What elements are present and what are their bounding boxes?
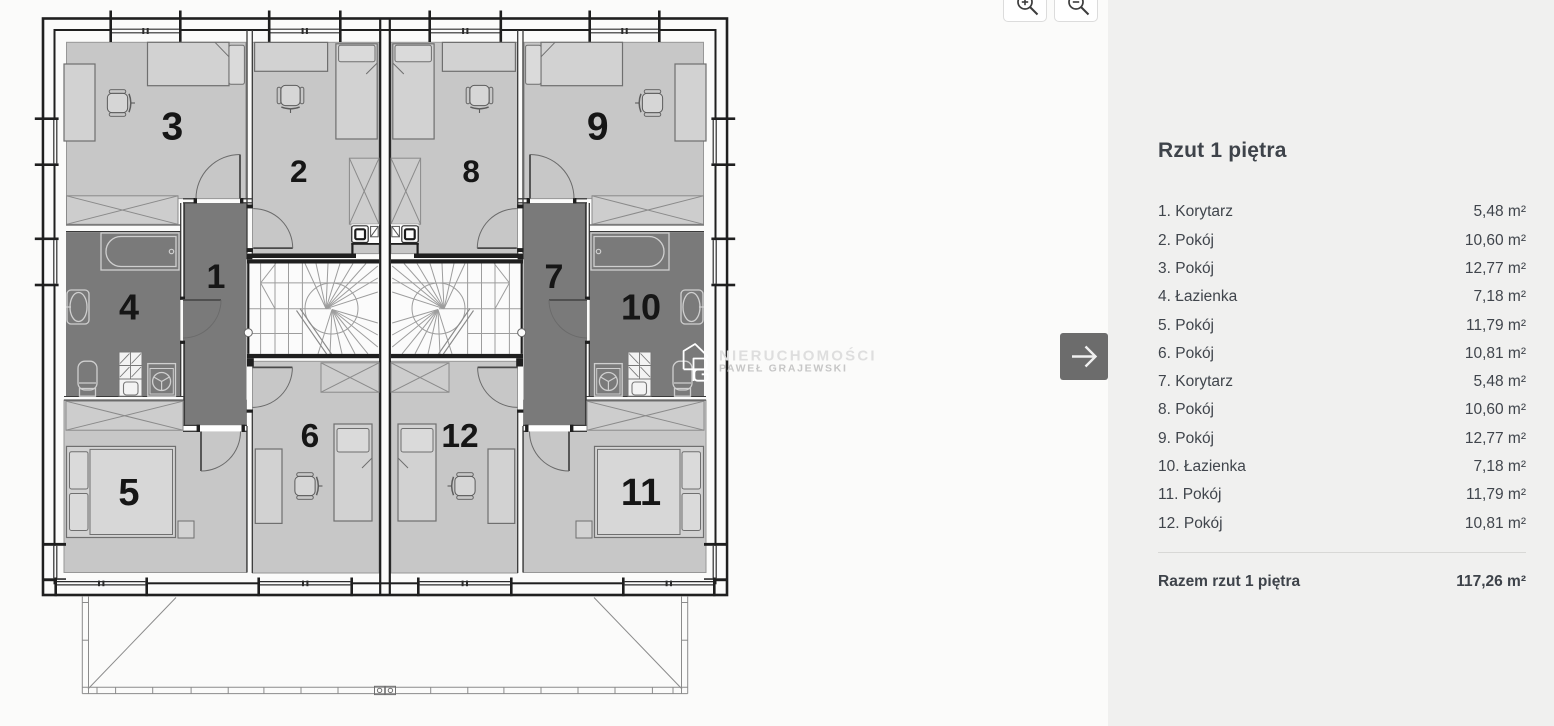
svg-text:11: 11 [621,472,661,514]
svg-text:3: 3 [161,106,183,149]
svg-text:10: 10 [621,287,661,328]
svg-text:PAWEŁ GRAJEWSKI: PAWEŁ GRAJEWSKI [719,363,848,375]
svg-text:8: 8 [462,153,480,189]
svg-text:9: 9 [587,106,609,149]
svg-text:12: 12 [441,418,478,455]
svg-text:6: 6 [301,418,320,455]
svg-text:1: 1 [207,258,226,296]
svg-text:2: 2 [290,153,308,189]
svg-text:4: 4 [119,287,139,328]
svg-text:7: 7 [545,258,564,296]
svg-text:5: 5 [118,472,139,514]
